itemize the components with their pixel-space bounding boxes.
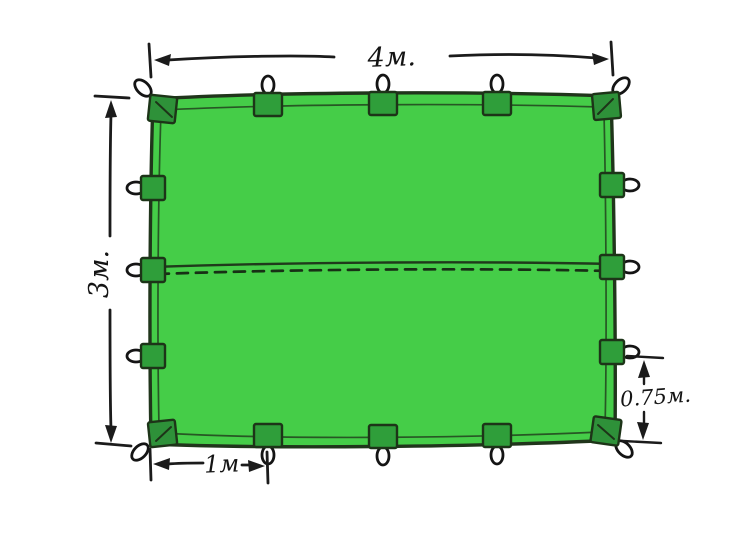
dimension-side-spacing: 0.75м. [619,356,691,443]
extension-tick [623,441,661,443]
extension-tick [150,449,151,480]
bottom-spacing-label: 1м [204,449,240,478]
extension-tick [267,452,268,483]
edge-loop-top-3 [483,75,511,115]
extension-tick [611,42,613,75]
arrowhead-down-icon [105,425,117,443]
tab-patch [600,340,624,364]
tab-patch [141,176,165,200]
loop-icon [491,446,503,464]
edge-loop-right-3 [600,340,639,364]
arrowhead-right-icon [592,53,609,65]
side-spacing-label: 0.75м. [619,383,691,412]
edge-loop-bottom-3 [483,424,511,464]
corner-loop-bottom-left [129,420,178,464]
tab-patch [483,92,511,115]
tab-patch [600,255,624,279]
tab-patch [369,92,397,115]
tab-patch [369,425,397,448]
loop-icon [377,75,389,93]
tab-patch [141,258,165,282]
corner-patch [148,420,177,448]
diagram-canvas: 4м. 3м. 1м [0,0,735,535]
edge-loop-right-1 [600,173,639,197]
tab-patch [483,424,511,447]
extension-tick [95,96,129,98]
edge-loop-bottom-2 [369,425,397,465]
tarp [150,93,615,447]
extension-tick [96,443,131,446]
tab-patch [141,344,165,368]
dimension-height: 3м. [84,96,131,446]
width-dimension-label: 4м. [366,41,416,74]
dimension-line [168,463,203,464]
tab-patch [600,173,624,197]
corner-loop-top-left [132,77,178,124]
tab-patch [254,424,282,447]
dimension-bottom-spacing: 1м [150,449,268,483]
loop-icon [377,447,389,465]
edge-loop-top-1 [254,76,282,116]
edge-loop-right-2 [600,255,639,279]
dimension-line [110,114,111,236]
loop-icon [262,76,274,94]
corner-loop-bottom-right [590,416,635,460]
edge-loop-left-1 [127,176,165,200]
tarp-dimension-sketch: 4м. 3м. 1м [0,0,735,535]
edge-loop-left-2 [127,258,165,282]
arrowhead-down-icon [637,422,649,440]
dimension-width: 4м. [149,41,613,77]
edge-loop-left-3 [127,344,165,368]
tab-patch [254,93,282,116]
ring-loop-icon [129,441,152,464]
height-dimension-label: 3м. [84,250,115,298]
dimension-line [110,310,111,429]
corner-loop-top-right [592,75,632,120]
loop-icon [491,75,503,93]
dimension-line [168,56,334,60]
edge-loop-top-2 [369,75,397,115]
extension-tick [149,44,151,77]
dimension-line [450,55,596,58]
